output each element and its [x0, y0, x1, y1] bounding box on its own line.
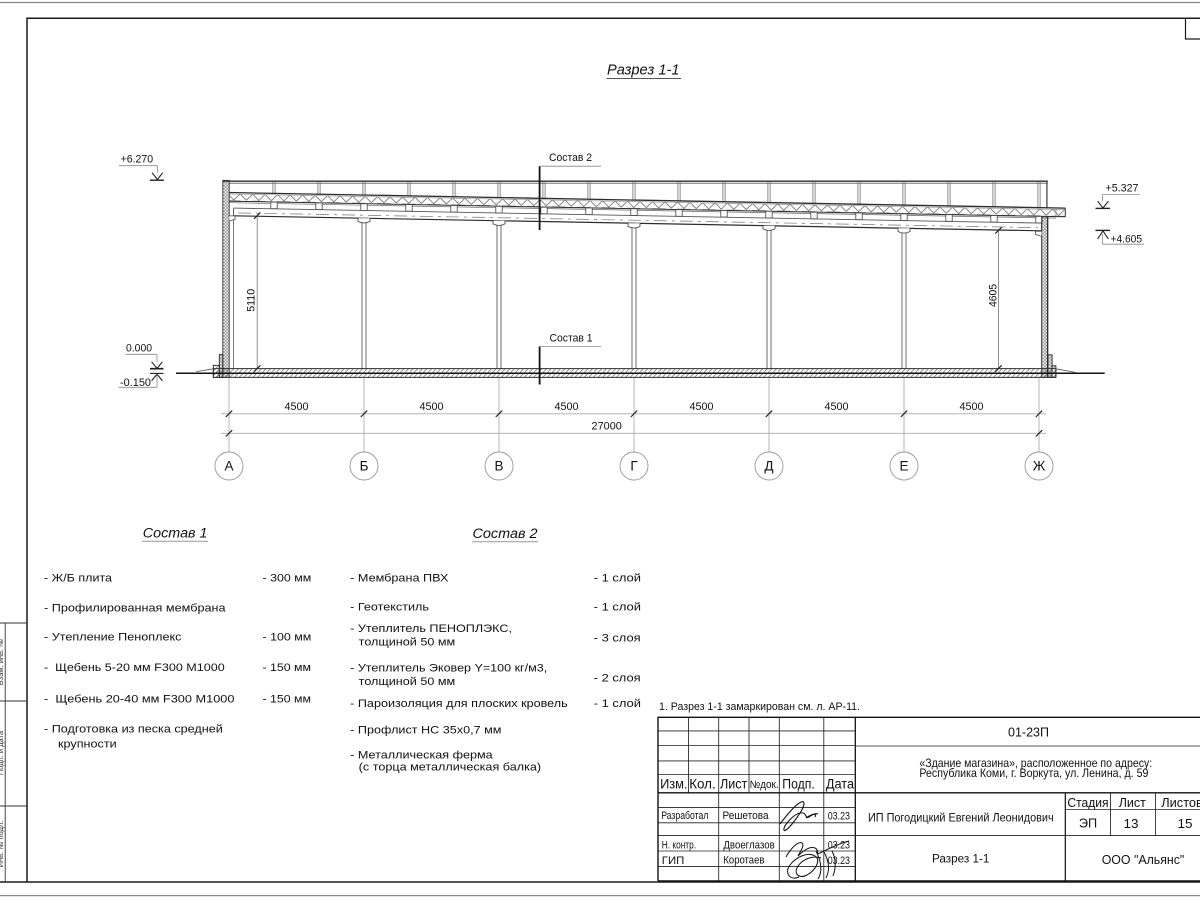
svg-text:Состав 2: Состав 2: [549, 152, 592, 164]
svg-text:Дата: Дата: [826, 777, 855, 792]
svg-text:4605: 4605: [988, 284, 1000, 307]
svg-text:- 1 слой: - 1 слой: [594, 698, 641, 710]
svg-text:- Металлическая ферма: - Металлическая ферма: [350, 750, 493, 762]
svg-text:- 1 слой: - 1 слой: [594, 602, 641, 614]
svg-text:- Ж/Б плита: - Ж/Б плита: [44, 573, 113, 585]
svg-text:- Пароизоляция для плоских кро: - Пароизоляция для плоских кровель: [350, 698, 568, 710]
svg-text:- Утеплитель Эковер Y=100 кг/м: - Утеплитель Эковер Y=100 кг/м3,: [350, 663, 547, 675]
svg-text:- 150 мм: - 150 мм: [263, 694, 312, 706]
svg-text:03.23: 03.23: [828, 810, 850, 822]
svg-text:крупности: крупности: [58, 739, 117, 751]
svg-text:Е: Е: [899, 459, 908, 474]
svg-text:- 3 слоя: - 3 слоя: [594, 633, 641, 645]
svg-text:Разрез 1-1: Разрез 1-1: [607, 62, 680, 78]
svg-text:Двоеглазов: Двоеглазов: [723, 840, 775, 852]
svg-text:Состав 2: Состав 2: [473, 526, 538, 542]
svg-text:0.000: 0.000: [126, 343, 152, 355]
svg-text:Б: Б: [360, 459, 369, 474]
svg-text:+4.605: +4.605: [1111, 234, 1143, 246]
svg-text:- 1 слой: - 1 слой: [594, 573, 641, 585]
svg-text:+5.327: +5.327: [1106, 182, 1139, 194]
svg-text:Ж: Ж: [1033, 459, 1046, 474]
svg-text:5110: 5110: [245, 289, 257, 312]
svg-text:ООО "Альянс": ООО "Альянс": [1102, 852, 1185, 867]
svg-text:- 2 слоя: - 2 слоя: [594, 673, 641, 685]
svg-text:- 100 мм: - 100 мм: [263, 632, 312, 644]
svg-text:Коротаев: Коротаев: [723, 855, 764, 867]
svg-text:Взам. инв. №: Взам. инв. №: [0, 639, 5, 685]
svg-text:15: 15: [1178, 816, 1193, 831]
svg-text:- Утепление Пеноплекс: - Утепление Пеноплекс: [44, 632, 182, 644]
svg-text:- Профилированная мембрана: - Профилированная мембрана: [44, 603, 226, 615]
svg-text:толщиной 50 мм: толщиной 50 мм: [359, 637, 456, 649]
svg-text:4500: 4500: [285, 401, 309, 413]
svg-text:- Геотекстиль: - Геотекстиль: [350, 602, 429, 614]
svg-text:Состав 1: Состав 1: [550, 333, 593, 345]
svg-text:В: В: [494, 459, 503, 474]
svg-text:- Подготовка из песка средней: - Подготовка из песка средней: [44, 724, 223, 736]
svg-text:№док.: №док.: [750, 779, 779, 791]
svg-text:Г: Г: [630, 459, 638, 474]
svg-text:Республика Коми, г. Воркута, у: Республика Коми, г. Воркута, ул. Ленина,…: [919, 767, 1148, 780]
svg-text:01-23П: 01-23П: [1008, 725, 1049, 740]
svg-text:- Щебень 5-20 мм F300 М1000: - Щебень 5-20 мм F300 М1000: [44, 662, 225, 674]
svg-text:Изм.: Изм.: [660, 777, 687, 792]
svg-text:ГИП: ГИП: [662, 855, 685, 867]
svg-text:+6.270: +6.270: [121, 154, 154, 166]
svg-text:Инв. № подл.: Инв. № подл.: [0, 821, 5, 868]
svg-text:- Профлист НС 35х0,7 мм: - Профлист НС 35х0,7 мм: [350, 725, 501, 737]
svg-text:- 300 мм: - 300 мм: [263, 573, 312, 585]
svg-text:Стадия: Стадия: [1067, 796, 1108, 810]
svg-text:- Мембрана ПВХ: - Мембрана ПВХ: [350, 573, 449, 585]
svg-text:Лист: Лист: [720, 777, 747, 792]
svg-text:4500: 4500: [690, 401, 714, 413]
svg-text:- 150 мм: - 150 мм: [263, 662, 312, 674]
svg-text:03.23: 03.23: [828, 855, 850, 867]
svg-text:27000: 27000: [592, 421, 622, 433]
svg-text:13: 13: [1124, 816, 1139, 831]
svg-text:Д: Д: [764, 459, 773, 474]
svg-text:Подп. и дата: Подп. и дата: [0, 730, 5, 775]
svg-text:Решетова: Решетова: [723, 810, 769, 822]
svg-text:ЭП: ЭП: [1079, 815, 1097, 830]
svg-text:4500: 4500: [960, 401, 984, 413]
svg-text:(с торца металлическая балка): (с торца металлическая балка): [359, 762, 542, 774]
svg-text:толщиной 50 мм: толщиной 50 мм: [359, 676, 456, 688]
svg-text:Кол.: Кол.: [689, 777, 716, 792]
svg-text:ИП Погодицкий Евгений Леонидов: ИП Погодицкий Евгений Леонидович: [868, 812, 1054, 825]
svg-text:Лист: Лист: [1119, 796, 1146, 810]
svg-text:Подп.: Подп.: [782, 777, 815, 792]
svg-text:Разработал: Разработал: [661, 810, 708, 822]
svg-text:4500: 4500: [420, 401, 444, 413]
svg-text:Н. контр.: Н. контр.: [662, 839, 696, 851]
svg-text:А: А: [224, 459, 233, 474]
svg-text:Листов: Листов: [1161, 796, 1200, 810]
svg-text:- Утеплитель ПЕНОПЛЭКС,: - Утеплитель ПЕНОПЛЭКС,: [350, 623, 512, 635]
svg-text:4500: 4500: [555, 401, 579, 413]
svg-text:4500: 4500: [825, 401, 849, 413]
svg-text:Разрез 1-1: Разрез 1-1: [932, 852, 990, 866]
svg-text:-0.150: -0.150: [120, 377, 151, 389]
svg-text:Состав 1: Состав 1: [143, 526, 208, 542]
svg-text:- Щебень 20-40 мм F300 М1000: - Щебень 20-40 мм F300 М1000: [44, 694, 235, 706]
svg-text:1. Разрез 1-1 замаркирован см.: 1. Разрез 1-1 замаркирован см. л. АР-11.: [659, 701, 860, 713]
